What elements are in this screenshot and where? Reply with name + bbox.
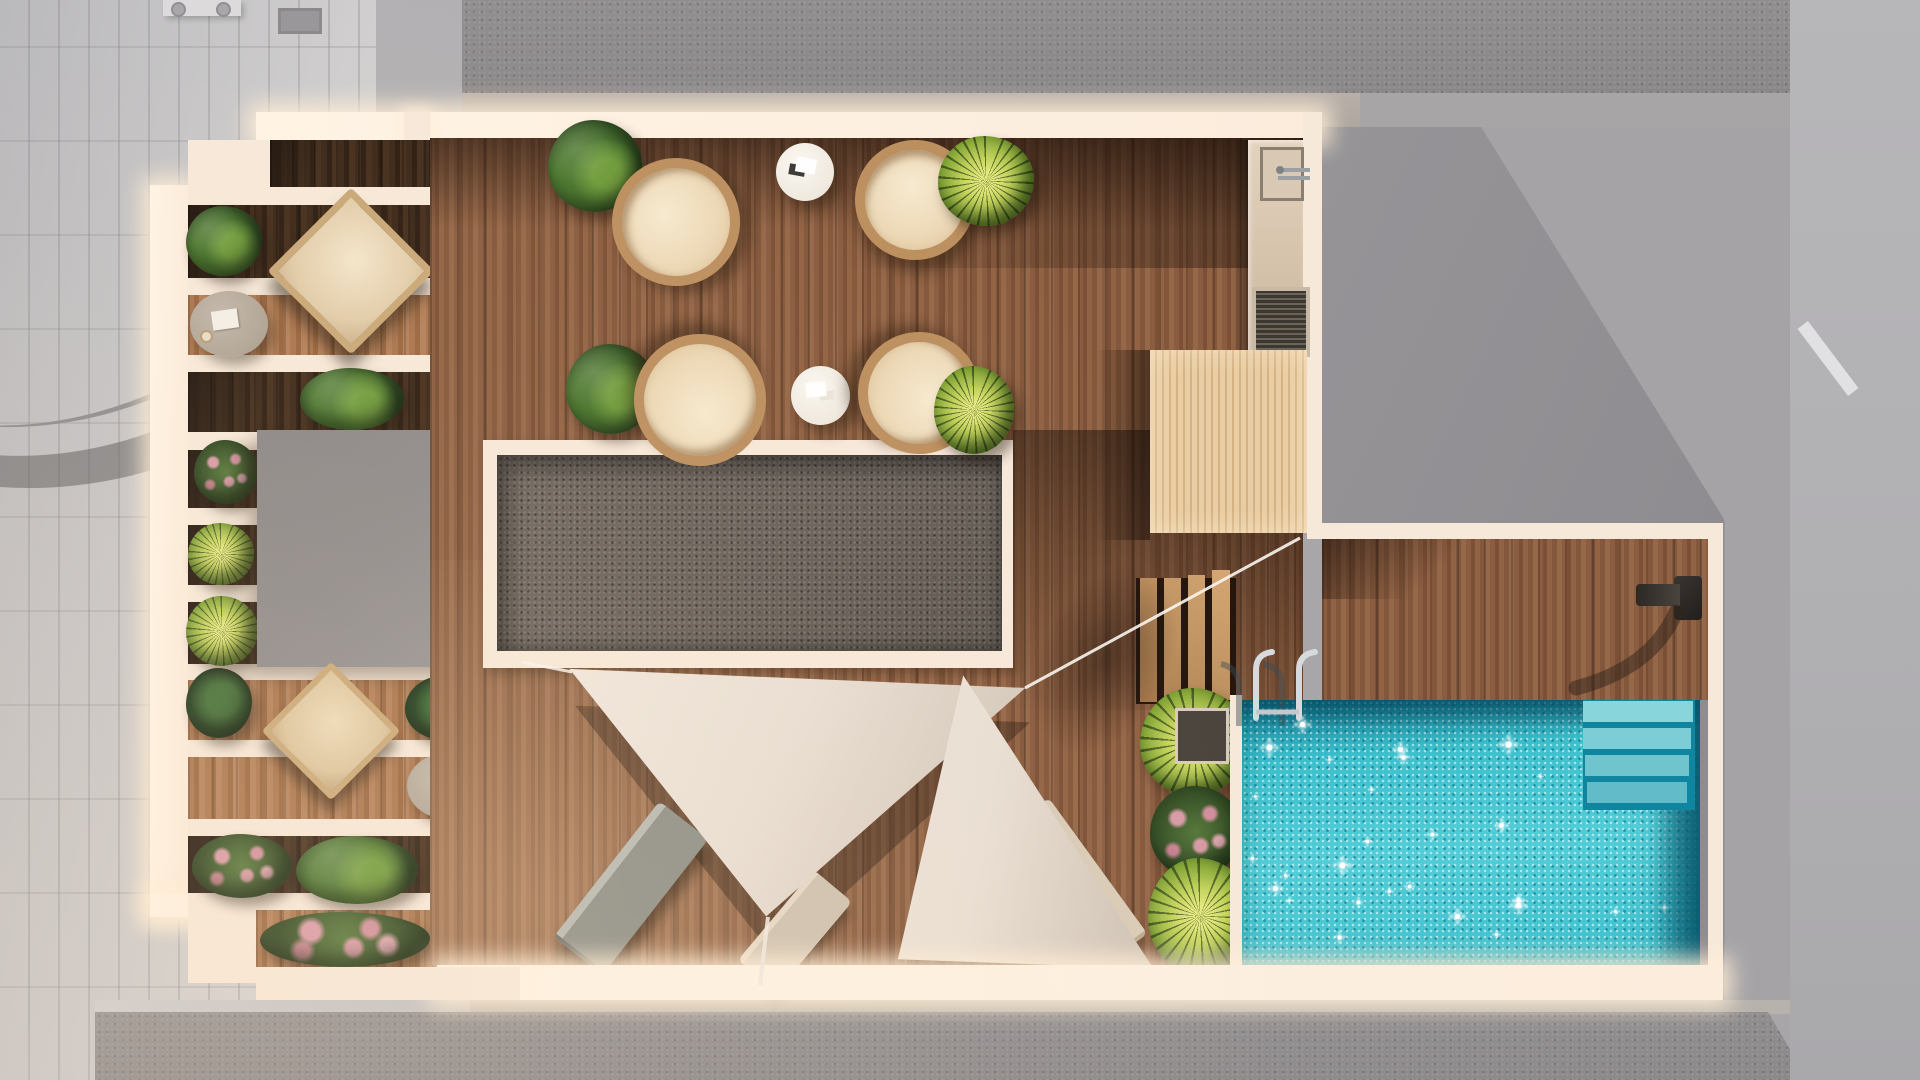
pool-sparkle	[1614, 910, 1617, 913]
pergola-side-shadow	[1096, 350, 1150, 540]
pool-sparkle	[1267, 744, 1273, 750]
terrace-border-west	[150, 185, 188, 917]
planter-row-1	[270, 140, 430, 187]
vent-grate	[1252, 287, 1310, 357]
underwater-step-1	[1583, 701, 1693, 722]
neighbour-roof-strip	[376, 0, 462, 112]
roof-hatch	[278, 8, 322, 34]
outdoor-shower-arm	[1636, 584, 1680, 606]
pool-sparkle	[1402, 755, 1407, 760]
planter-plant-yucca-1	[188, 523, 254, 585]
underwater-step-2	[1583, 728, 1691, 749]
planter-plant-yucca-2	[186, 596, 258, 666]
pool-sparkle	[1495, 933, 1498, 936]
pool-sparkle	[1516, 903, 1522, 909]
pool-sparkle	[1339, 863, 1345, 869]
underwater-step-4	[1587, 782, 1687, 803]
planter-plant-bush-2	[296, 836, 418, 904]
roof-vent-2	[216, 2, 231, 17]
pool-sparkle	[1370, 788, 1372, 790]
pool-terrace-border-east	[1708, 523, 1723, 1000]
pergola-deck	[1150, 350, 1307, 533]
planter-plant-palm	[186, 206, 262, 276]
dining-palm-1	[938, 136, 1034, 226]
gravel-roof	[497, 455, 1002, 651]
pool-sparkle	[1455, 913, 1460, 918]
east-column-roof	[1790, 0, 1920, 1080]
kitchen-sink	[1260, 147, 1304, 201]
south-neighbour-roof	[95, 1012, 1790, 1080]
bistro-tray-1	[795, 156, 817, 174]
dining-palm-2	[934, 366, 1014, 454]
pool-sparkle	[1337, 935, 1341, 939]
terrace-border-south-left	[256, 967, 520, 1000]
pool-sparkle	[1288, 899, 1291, 902]
step-tread-3	[1188, 575, 1205, 700]
pool-sparkle	[1499, 823, 1504, 828]
pool-planter-box	[1175, 708, 1229, 764]
pool-terrace-border-north	[1307, 523, 1723, 539]
pool-sparkle	[1366, 840, 1369, 843]
roof-vent-1	[171, 2, 186, 17]
pool-sparkle	[1505, 741, 1511, 747]
neighbour-roof-top	[462, 0, 1792, 93]
planter-plant-roses-2	[192, 834, 292, 898]
pool-sparkle	[1431, 833, 1435, 837]
pool-sparkle	[1328, 759, 1331, 762]
pool-sparkle	[1398, 747, 1403, 752]
side-table-book	[211, 308, 239, 330]
pool-sparkle	[1273, 886, 1278, 891]
pool-sparkle	[1251, 857, 1254, 860]
planter-plant-fern	[186, 668, 252, 738]
planter-plant-bush	[300, 368, 404, 430]
underwater-step-3	[1585, 755, 1689, 776]
side-table-cup	[200, 330, 213, 343]
pool-sparkle	[1357, 901, 1361, 905]
planter-plant-roses-1	[194, 440, 258, 504]
pool-sparkle	[1300, 722, 1306, 728]
pool-sparkle	[1540, 775, 1542, 777]
rooftop-floor-plan-render	[0, 0, 1920, 1080]
step-tread-4	[1212, 570, 1230, 700]
pool-sparkle	[1284, 874, 1287, 877]
pool-sparkle	[1388, 890, 1391, 893]
pool-coping-west	[1230, 695, 1242, 965]
kitchen-faucet-knob	[1276, 166, 1284, 174]
bistro-tray-2	[805, 381, 826, 398]
planter-plant-roses-3	[260, 912, 430, 967]
pool-deck-corner-shadow	[1322, 539, 1472, 599]
neighbour-roof-right-edge	[1360, 93, 1790, 127]
south-parapet-strip	[470, 1000, 1790, 1014]
pool-sparkle	[1407, 884, 1411, 888]
kitchenette-shadow	[1234, 140, 1248, 350]
pool-sparkle	[1254, 796, 1256, 798]
terrace-border-south	[437, 965, 1723, 1000]
